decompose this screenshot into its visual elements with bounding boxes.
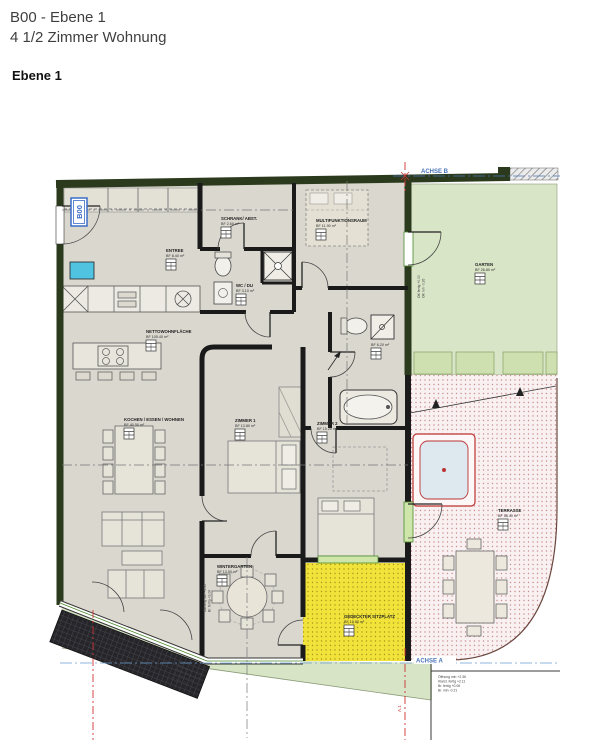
axis-a-label: ACHSE A	[416, 659, 443, 665]
room-info-icon	[146, 340, 156, 351]
svg-text:BF 13.50 m²: BF 13.50 m²	[217, 570, 238, 574]
svg-text:Klarst. fertig +2.11: Klarst. fertig +2.11	[438, 680, 465, 684]
svg-text:BF 11.90 m²: BF 11.90 m²	[316, 224, 337, 228]
svg-text:Br. min -0.21: Br. min -0.21	[438, 689, 457, 693]
svg-text:SCHRANK/ ABST.: SCHRANK/ ABST.	[221, 216, 257, 221]
svg-text:ENTREE: ENTREE	[166, 248, 184, 253]
svg-text:NETTOWOHNFLÄCHE: NETTOWOHNFLÄCHE	[146, 329, 192, 334]
svg-text:ZIMMER 2: ZIMMER 2	[317, 421, 338, 426]
entry-opening	[56, 206, 64, 244]
floor-plan: ACHSE B ACHSE A A.1 B00 NETTOWOHNFLÄCHE …	[0, 0, 600, 740]
room-info-icon	[235, 429, 245, 440]
svg-text:BF 15.20 m²: BF 15.20 m²	[317, 427, 338, 431]
washbasin	[214, 282, 232, 304]
svg-text:Br. fertig +0.06: Br. fertig +0.06	[438, 684, 460, 688]
coffee-table	[122, 551, 162, 565]
room-info-icon	[498, 519, 508, 530]
facade-annotation-2: Öffnung min +2.36 Klarst. fertig +2.11 B…	[438, 675, 466, 693]
level-label: Ebene 1	[12, 68, 62, 83]
bar-stool	[76, 372, 90, 380]
svg-text:BF 8.40 m²: BF 8.40 m²	[166, 254, 185, 258]
svg-text:KOCHEN / ESSEN / WOHNEN: KOCHEN / ESSEN / WOHNEN	[124, 417, 184, 422]
svg-text:GEDECKTER SITZPLATZ: GEDECKTER SITZPLATZ	[344, 614, 395, 619]
unit-badge: B00	[71, 198, 87, 226]
window-dim-1: Öffnung min +2.35	[203, 584, 207, 612]
room-info-icon	[236, 294, 246, 305]
room-info-icon	[166, 259, 176, 270]
svg-text:WINTERGARTEN: WINTERGARTEN	[217, 564, 252, 569]
svg-text:ZIMMER 1: ZIMMER 1	[235, 418, 256, 423]
outdoor-table	[456, 551, 494, 623]
terrace-door-opening	[404, 502, 413, 542]
garden-dim-2: OK roh -0.26	[422, 278, 426, 298]
room-info-icon	[371, 348, 381, 359]
kitchen-counter	[62, 286, 200, 312]
svg-text:BF 6.20 m²: BF 6.20 m²	[371, 343, 390, 347]
svg-text:GARTEN: GARTEN	[475, 262, 493, 267]
svg-text:BF 105.40 m²: BF 105.40 m²	[146, 335, 169, 339]
room-info-icon	[316, 229, 326, 240]
svg-text:BF 19.80 m²: BF 19.80 m²	[344, 620, 365, 624]
top-hatch-strip	[510, 168, 558, 180]
room-info-icon	[217, 575, 227, 586]
toilet	[215, 256, 231, 276]
bar-stool	[120, 372, 134, 380]
room-info-icon	[317, 432, 327, 443]
unit-badge-text: B00	[75, 205, 84, 219]
red-axis-label: A.1	[397, 705, 402, 712]
room-info-icon	[124, 428, 134, 439]
svg-text:BF 58.40 m²: BF 58.40 m²	[498, 514, 519, 518]
svg-text:WC / DU: WC / DU	[236, 283, 253, 288]
garden-shrubs	[414, 352, 557, 374]
drawing-title-line1: B00 - Ebene 1	[10, 8, 166, 28]
svg-text:BF 13.80 m²: BF 13.80 m²	[235, 424, 256, 428]
svg-text:TERRASSE: TERRASSE	[498, 508, 522, 513]
bar-stool	[98, 372, 112, 380]
svg-text:Öffnung min +2.36: Öffnung min +2.36	[438, 675, 466, 679]
covered-seat-area	[303, 563, 408, 661]
axis-b-label: ACHSE B	[421, 169, 449, 175]
drawing-title-line2: 4 1/2 Zimmer Wohnung	[10, 28, 166, 48]
svg-text:BF 3.10 m²: BF 3.10 m²	[236, 289, 255, 293]
room-info-icon	[221, 227, 231, 238]
garden-dim-1: OK fertig +0.00	[417, 275, 421, 298]
room-info-icon	[475, 273, 485, 284]
sofa	[102, 512, 164, 546]
window-dim-2: Br. fertig +3.06	[208, 590, 212, 612]
svg-text:BF 26.80 m²: BF 26.80 m²	[475, 268, 496, 272]
toilet	[345, 318, 367, 334]
svg-text:BF 40.50 m²: BF 40.50 m²	[124, 423, 145, 427]
svg-text:BF 2.60 m²: BF 2.60 m²	[221, 222, 240, 226]
garden-door-opening	[404, 232, 413, 266]
sliding-window	[318, 556, 378, 563]
bar-stool	[142, 372, 156, 380]
drawing-header: B00 - Ebene 1 4 1/2 Zimmer Wohnung	[10, 8, 166, 49]
room-info-icon	[344, 625, 354, 636]
kitchen-sink	[70, 262, 94, 279]
svg-text:MULTIFUNKTIONSRAUM: MULTIFUNKTIONSRAUM	[316, 218, 367, 223]
